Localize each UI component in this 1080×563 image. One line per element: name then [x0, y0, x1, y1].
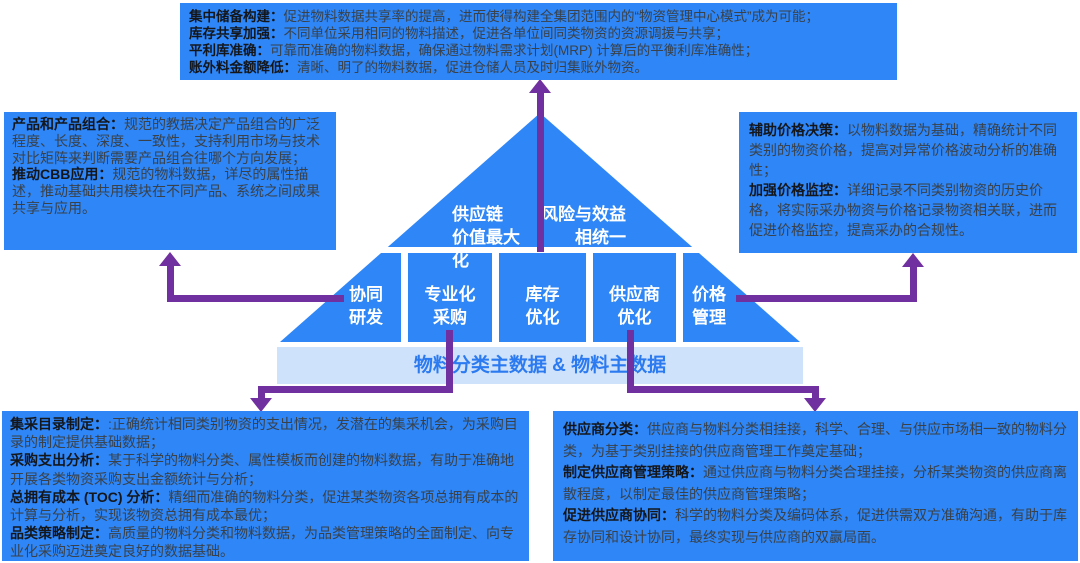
inventory-benefits-box: 集中储备构建：促进物料数据共享率的提高，进而使得构建全集团范围内的“物资管理中心… — [180, 3, 897, 80]
connector-right-line — [910, 267, 917, 302]
pyramid-cell-divider — [401, 247, 408, 342]
arrow-up-icon — [902, 253, 924, 267]
benefit-paragraph: 辅助价格决策：以物料数据为基础，精确统计不同类别的物资价格，提高对异常价格波动分… — [749, 120, 1067, 180]
benefit-paragraph: 平利库准确：可靠而准确的物料数据，确保通过物料需求计划(MRP) 计算后的平衡利… — [189, 42, 888, 59]
benefit-description: 清晰、明了的物料数据，促进仓储人员及时归集账外物资。 — [297, 60, 648, 75]
benefit-paragraph: 品类策略制定：高质量的物料分类和物料数据，为品类管理策略的全面制定、向专业化采购… — [10, 524, 521, 560]
price-benefits-box: 辅助价格决策：以物料数据为基础，精确统计不同类别的物资价格，提高对异常价格波动分… — [739, 112, 1077, 253]
benefit-term: 产品和产品组合： — [12, 116, 124, 132]
connector-bottom-left-line — [446, 330, 453, 393]
benefit-description: 可靠而准确的物料数据，确保通过物料需求计划(MRP) 计算后的平衡利库准确性； — [270, 43, 758, 58]
pyramid-cell-inventory-optimize: 库存 优化 — [499, 284, 586, 329]
goal-risk-benefit-label: 风险与效益 相统一 — [540, 203, 626, 249]
benefit-paragraph: 集采目录制定：:正确统计相同类别物资的支出情况，发潜在的集采机会，为采购目录的制… — [10, 415, 521, 451]
goal-supply-chain-value-label: 供应链 价值最大化 — [452, 203, 536, 272]
benefit-description: 不同单位采用相同的物料描述，促进各单位间同类物资的资源调援与共享； — [284, 26, 730, 41]
benefit-paragraph: 推动CBB应用：规范的物料数据，详尽的属性描述，推动基础共用模块在不同产品、系统… — [12, 166, 328, 216]
connector-top-line — [537, 93, 544, 252]
procurement-benefits-box: 集采目录制定：:正确统计相同类别物资的支出情况，发潜在的集采机会，为采购目录的制… — [2, 411, 529, 561]
benefit-paragraph: 制定供应商管理策略：通过供应商与物料分类合理挂接，分析某类物资的供应商离散程度，… — [563, 462, 1068, 505]
benefit-term: 品类策略制定： — [10, 525, 108, 541]
benefit-term: 促进供应商协同： — [563, 507, 675, 523]
material-master-data-pyramid-diagram: 供应链 价值最大化 风险与效益 相统一 协同 研发 专业化 采购 库存 优化 供… — [0, 0, 1080, 563]
connector-left-line — [167, 266, 174, 302]
pyramid-cell-divider — [586, 247, 593, 342]
benefit-term: 集采目录制定： — [10, 416, 108, 432]
pyramid-cell-collaborative-rd: 协同 研发 — [330, 284, 402, 329]
pyramid-cell-supplier-optimize: 供应商 优化 — [593, 284, 676, 329]
benefit-paragraph: 供应商分类：供应商与物料分类相挂接，科学、合理、与供应市场相一致的物料分类，为基… — [563, 419, 1068, 462]
benefit-paragraph: 加强价格监控：详细记录不同类别物资的历史价格，将实际采办物资与价格记录物资相关联… — [749, 180, 1067, 240]
benefit-term: 加强价格监控： — [749, 182, 847, 198]
benefit-term: 平利库准确： — [189, 43, 270, 58]
benefit-term: 辅助价格决策： — [749, 122, 847, 138]
benefit-paragraph: 库存共享加强：不同单位采用相同的物料描述，促进各单位间同类物资的资源调援与共享； — [189, 25, 888, 42]
arrow-up-icon — [159, 252, 181, 266]
master-data-base-bar: 物料分类主数据 & 物料主数据 — [277, 347, 803, 384]
arrow-up-icon — [529, 79, 551, 93]
benefit-description: 促进物料数据共享率的提高，进而使得构建全集团范围内的“物资管理中心模式”成为可能… — [284, 9, 820, 24]
benefit-term: 库存共享加强： — [189, 26, 284, 41]
benefit-paragraph: 促进供应商协同：科学的物料分类及编码体系，促进供需双方准确沟通，有助于库存协同和… — [563, 505, 1068, 548]
benefit-term: 总拥有成本 (TOC) 分析： — [10, 489, 168, 505]
supplier-benefits-box: 供应商分类：供应商与物料分类相挂接，科学、合理、与供应市场相一致的物料分类，为基… — [553, 411, 1078, 561]
arrow-down-icon — [804, 398, 826, 412]
benefit-term: 采购支出分析： — [10, 452, 108, 468]
pyramid-cell-professional-procure: 专业化 采购 — [408, 284, 492, 329]
benefit-term: 供应商分类： — [563, 421, 647, 437]
benefit-term: 集中储备构建： — [189, 9, 284, 24]
pyramid-cell-price-management: 价格 管理 — [676, 284, 742, 329]
benefit-paragraph: 账外料金额降低：清晰、明了的物料数据，促进仓储人员及时归集账外物资。 — [189, 59, 888, 76]
benefit-term: 账外料金额降低： — [189, 60, 297, 75]
arrow-down-icon — [250, 398, 272, 412]
connector-bottom-right-line — [627, 386, 819, 393]
connector-bottom-right-line — [627, 330, 634, 393]
benefit-paragraph: 总拥有成本 (TOC) 分析：精细而准确的物料分类，促进某类物资各项总拥有成本的… — [10, 488, 521, 524]
benefit-term: 制定供应商管理策略： — [563, 464, 703, 480]
benefit-paragraph: 产品和产品组合：规范的教据决定产品组合的广泛程度、长度、深度、一致性，支持利用市… — [12, 116, 328, 166]
product-portfolio-benefits-box: 产品和产品组合：规范的教据决定产品组合的广泛程度、长度、深度、一致性，支持利用市… — [4, 112, 336, 250]
connector-bottom-left-line — [258, 386, 453, 393]
benefit-paragraph: 采购支出分析：某于科学的物料分类、属性模板而创建的物料数据，有助于准确地开展各类… — [10, 451, 521, 487]
connector-left-line — [167, 295, 344, 302]
benefit-paragraph: 集中储备构建：促进物料数据共享率的提高，进而使得构建全集团范围内的“物资管理中心… — [189, 8, 888, 25]
benefit-term: 推动CBB应用： — [12, 166, 112, 182]
connector-right-line — [736, 295, 917, 302]
